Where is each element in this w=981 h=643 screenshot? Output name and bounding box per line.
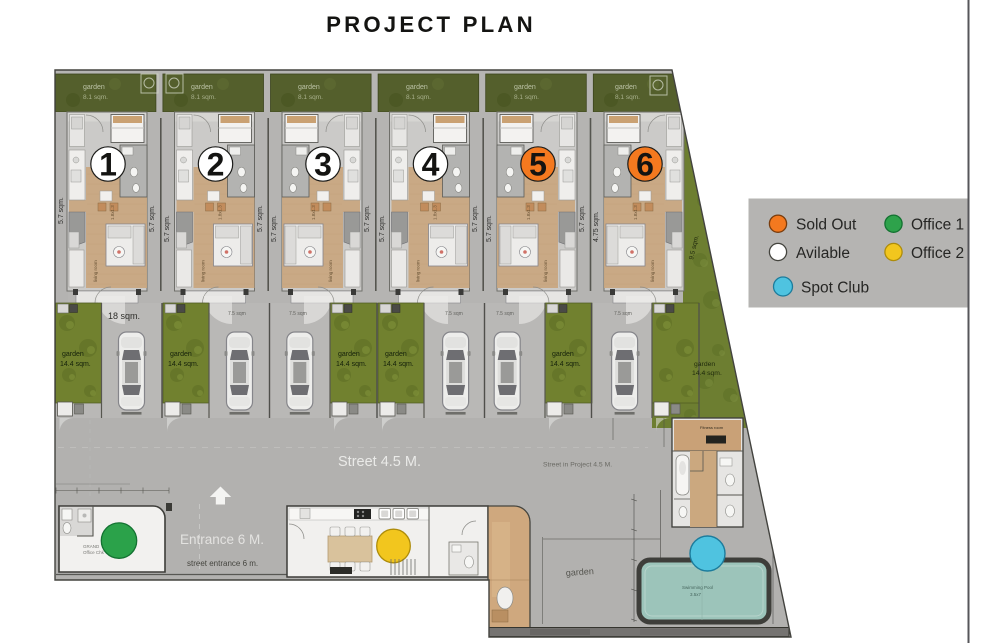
svg-text:Street 4.5 M.: Street 4.5 M. — [338, 454, 421, 470]
svg-text:living room: living room — [416, 260, 421, 282]
svg-text:5.7 sqm.: 5.7 sqm. — [364, 205, 371, 232]
svg-text:PROJECT PLAN: PROJECT PLAN — [326, 12, 536, 37]
svg-text:Avilable: Avilable — [796, 245, 850, 262]
svg-text:Entrance 6 M.: Entrance 6 M. — [180, 532, 264, 547]
svg-text:8.1 sqm.: 8.1 sqm. — [406, 94, 431, 101]
svg-text:Spot Club: Spot Club — [801, 280, 869, 297]
svg-text:8.1 sqm.: 8.1 sqm. — [191, 94, 216, 101]
svg-text:GRAND: GRAND — [83, 544, 100, 549]
svg-text:garden: garden — [615, 84, 637, 91]
svg-text:garden: garden — [62, 351, 84, 358]
svg-text:8.1 sqm.: 8.1 sqm. — [83, 94, 108, 101]
svg-text:5: 5 — [529, 147, 547, 183]
svg-text:14.4 sqm.: 14.4 sqm. — [336, 361, 367, 368]
svg-text:Fitness room: Fitness room — [700, 425, 724, 430]
svg-text:Office 2: Office 2 — [911, 245, 964, 262]
svg-text:3.5x7: 3.5x7 — [690, 592, 702, 597]
svg-text:living room: living room — [328, 260, 333, 282]
svg-text:5.7 sqm.: 5.7 sqm. — [164, 215, 171, 242]
svg-text:1.8x1.3: 1.8x1.3 — [218, 205, 223, 220]
svg-text:7.5 sqm: 7.5 sqm — [289, 311, 307, 317]
svg-text:garden: garden — [694, 361, 715, 368]
svg-text:2: 2 — [207, 147, 225, 183]
svg-text:Sold Out: Sold Out — [796, 217, 857, 234]
svg-text:7.5 sqm: 7.5 sqm — [614, 311, 632, 317]
svg-text:1.8x1.3: 1.8x1.3 — [433, 205, 438, 220]
svg-text:18 sqm.: 18 sqm. — [108, 311, 140, 321]
svg-text:Street in Project 4.5 M.: Street in Project 4.5 M. — [543, 462, 612, 469]
svg-text:1.8x1.3: 1.8x1.3 — [311, 205, 316, 220]
svg-text:garden: garden — [565, 566, 594, 578]
svg-text:5.7 sqm.: 5.7 sqm. — [257, 205, 264, 232]
svg-text:Swimming Pool: Swimming Pool — [682, 585, 713, 590]
svg-text:Office 1: Office 1 — [911, 217, 964, 234]
svg-text:garden: garden — [514, 84, 536, 91]
svg-text:1: 1 — [99, 147, 117, 183]
svg-text:garden: garden — [406, 84, 428, 91]
svg-text:6: 6 — [636, 147, 654, 183]
svg-text:8.1 sqm.: 8.1 sqm. — [514, 94, 539, 101]
svg-text:4.75 sqm.: 4.75 sqm. — [593, 211, 600, 242]
svg-text:living room: living room — [650, 260, 655, 282]
svg-text:7.5 sqm: 7.5 sqm — [496, 311, 514, 317]
svg-text:garden: garden — [170, 351, 192, 358]
svg-text:8.1 sqm.: 8.1 sqm. — [298, 94, 323, 101]
svg-text:14.4 sqm.: 14.4 sqm. — [168, 361, 199, 368]
svg-text:garden: garden — [83, 84, 105, 91]
svg-text:garden: garden — [385, 351, 407, 358]
svg-text:garden: garden — [338, 351, 360, 358]
svg-text:14.4 sqm.: 14.4 sqm. — [60, 361, 91, 368]
svg-text:garden: garden — [298, 84, 320, 91]
svg-text:1.8x1.3: 1.8x1.3 — [110, 205, 115, 220]
svg-text:1.8x1.3: 1.8x1.3 — [526, 205, 531, 220]
svg-text:5.7 sqm.: 5.7 sqm. — [149, 205, 156, 232]
svg-text:5.7 sqm.: 5.7 sqm. — [579, 205, 586, 232]
svg-text:14.4 sqm.: 14.4 sqm. — [692, 370, 722, 377]
svg-text:7.5 sqm: 7.5 sqm — [445, 311, 463, 317]
svg-text:8.1 sqm.: 8.1 sqm. — [615, 94, 640, 101]
svg-text:14.4 sqm.: 14.4 sqm. — [383, 361, 414, 368]
svg-text:living room: living room — [93, 260, 98, 282]
svg-text:living room: living room — [201, 260, 206, 282]
svg-text:5.7 sqm.: 5.7 sqm. — [271, 215, 278, 242]
svg-text:garden: garden — [552, 351, 574, 358]
svg-text:7.5 sqm: 7.5 sqm — [228, 311, 246, 317]
svg-text:5.7 sqm.: 5.7 sqm. — [472, 205, 479, 232]
svg-text:1.8x1.3: 1.8x1.3 — [633, 205, 638, 220]
svg-text:5.7 sqm.: 5.7 sqm. — [58, 197, 65, 224]
svg-text:street entrance 6 m.: street entrance 6 m. — [187, 559, 258, 568]
svg-text:3: 3 — [314, 147, 332, 183]
svg-text:14.4 sqm.: 14.4 sqm. — [550, 361, 581, 368]
svg-text:5.7 sqm.: 5.7 sqm. — [379, 215, 386, 242]
svg-text:5.7 sqm.: 5.7 sqm. — [486, 215, 493, 242]
svg-text:garden: garden — [191, 84, 213, 91]
svg-text:living room: living room — [543, 260, 548, 282]
svg-text:4: 4 — [422, 147, 440, 183]
svg-text:Office Chk: Office Chk — [83, 550, 105, 555]
